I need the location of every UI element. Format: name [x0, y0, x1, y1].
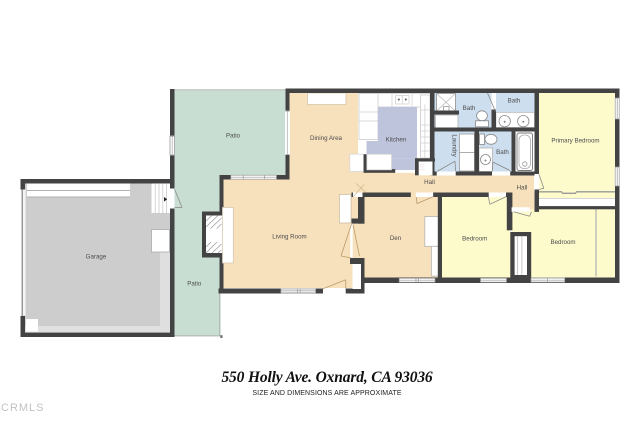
svg-text:Hall: Hall — [424, 179, 435, 186]
svg-text:550 Holly Ave. Oxnard, CA 9303: 550 Holly Ave. Oxnard, CA 93036 — [221, 369, 432, 386]
svg-text:Kitchen: Kitchen — [386, 137, 407, 144]
svg-text:Bath: Bath — [496, 149, 509, 156]
svg-text:Primary Bedroom: Primary Bedroom — [551, 138, 599, 145]
svg-text:Den: Den — [390, 235, 402, 242]
svg-text:SIZE AND DIMENSIONS ARE APPROX: SIZE AND DIMENSIONS ARE APPROXIMATE — [252, 390, 401, 397]
svg-text:Garage: Garage — [86, 254, 107, 261]
svg-text:Hall: Hall — [517, 185, 528, 192]
svg-text:Bedroom: Bedroom — [550, 239, 575, 246]
svg-text:Bedroom: Bedroom — [462, 236, 487, 243]
svg-text:Laundry: Laundry — [451, 134, 458, 157]
svg-text:Bath: Bath — [463, 105, 476, 112]
svg-text:Bath: Bath — [508, 98, 521, 105]
svg-text:Patio: Patio — [187, 281, 202, 288]
svg-text:CRMLS: CRMLS — [1, 402, 45, 414]
svg-text:Living Room: Living Room — [272, 234, 306, 241]
svg-text:Patio: Patio — [226, 133, 241, 140]
svg-text:Dining Area: Dining Area — [310, 135, 343, 142]
